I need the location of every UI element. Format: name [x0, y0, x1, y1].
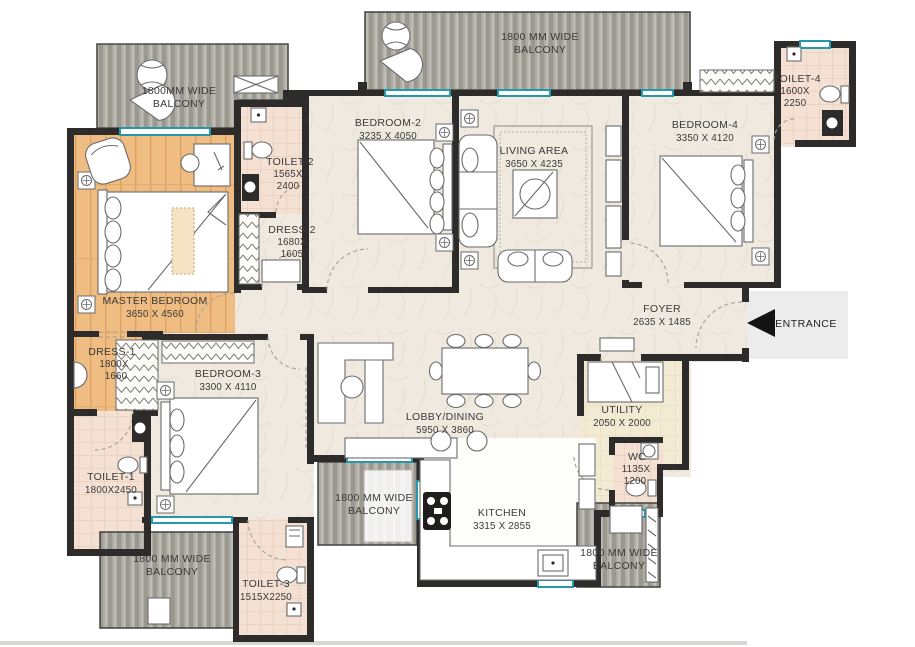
room-label-balcony-tl: 1800MM WIDE: [142, 85, 216, 97]
room-label-utility: UTILITY: [601, 404, 642, 416]
room-label-master: MASTER BEDROOM: [102, 295, 207, 307]
floor-plan-drawing: ENTRANCE: [0, 0, 915, 647]
kitchen-window: [538, 580, 573, 587]
foyer-shoe-cabinet: [600, 338, 634, 351]
balcony-bl-box: [148, 598, 170, 624]
room-dim-toilet1: 1800X2450: [85, 485, 137, 496]
room-label-wc: WC: [628, 451, 646, 463]
bedroom2-balcony-slider: [385, 90, 450, 96]
room-label-balcony-tl-2: BALCONY: [153, 98, 205, 110]
living-loveseat: [498, 250, 572, 282]
living-side-table-1: [461, 110, 478, 127]
kitchen-stove: [423, 492, 451, 530]
tv-unit: [606, 126, 621, 276]
room-label-living: LIVING AREA: [500, 145, 569, 157]
room-label-balcony-bl: 1800 MM WIDE: [133, 553, 211, 565]
room-label-balcony-br-2: BALCONY: [593, 560, 645, 572]
room-label-balcony-tc: 1800 MM WIDE: [501, 31, 579, 43]
room-label-balcony-tc-2: BALCONY: [514, 44, 566, 56]
bedroom4-nightstand-1: [752, 136, 769, 153]
room-dim-dress1b: 1660: [105, 371, 128, 382]
living-center-table: [513, 170, 557, 218]
room-dim-living: 3650 X 4235: [505, 159, 563, 170]
room-dim-bedroom3: 3300 X 4110: [199, 382, 256, 393]
room-dim-wcb: 1200: [624, 476, 647, 487]
dress2-wardrobe: [239, 214, 259, 284]
room-label-lobby: LOBBY/DINING: [406, 411, 484, 423]
living-sofa: [459, 135, 497, 247]
dress2-bench: [262, 260, 300, 282]
room-dim-toilet3: 1515X2250: [240, 592, 292, 603]
room-label-toilet1: TOILET-1: [87, 471, 135, 483]
bottom-edge-strip: [0, 641, 747, 645]
toilet4-window: [800, 41, 830, 48]
utility-appliances: [588, 362, 663, 402]
room-label-bedroom4: BEDROOM-4: [672, 119, 738, 131]
room-dim-utility: 2050 X 2000: [593, 418, 651, 429]
bedroom3-wardrobe: [162, 341, 254, 363]
room-dim-toilet2b: 2400: [277, 181, 300, 192]
room-dim-toilet4a: 1600X: [780, 86, 810, 97]
room-dim-foyer: 2635 X 1485: [633, 317, 691, 328]
balcony-br-screen: [646, 508, 658, 582]
room-dim-bedroom4: 3350 X 4120: [676, 133, 734, 144]
living-side-table-2: [461, 252, 478, 269]
master-rug: [172, 208, 194, 274]
balcony-br-planter: [610, 506, 642, 533]
room-label-balcony-bc-2: BALCONY: [348, 505, 400, 517]
room-dim-master: 3650 X 4560: [126, 309, 184, 320]
room-label-toilet2: TOILET-2: [266, 156, 314, 168]
living-balcony-slider: [498, 90, 550, 96]
bedroom4-wardrobe: [700, 70, 774, 92]
room-label-dress1: DRESS-1: [88, 346, 136, 358]
bedroom2-nightstand-2: [436, 234, 453, 251]
room-label-toilet4: TOILET-4: [773, 73, 821, 85]
room-dim-dress2a: 1680X: [277, 237, 307, 248]
bedroom2-bed: [358, 140, 452, 234]
bedroom4-nightstand-2: [752, 248, 769, 265]
master-bed: [98, 190, 228, 294]
room-dim-kitchen: 3315 X 2855: [473, 521, 531, 532]
room-dim-lobby: 5950 X 3860: [416, 425, 474, 436]
room-dim-wca: 1135X: [622, 464, 651, 475]
bedroom3-nightstand-1: [157, 382, 174, 399]
room-label-kitchen: KITCHEN: [478, 507, 526, 519]
room-label-balcony-br: 1800 MM WIDE: [580, 547, 658, 559]
bedroom3-nightstand-2: [157, 496, 174, 513]
room-dim-toilet2a: 1565X: [273, 169, 303, 180]
bedroom3-balcony-slider: [152, 517, 232, 523]
room-label-bedroom3: BEDROOM-3: [195, 368, 261, 380]
bedroom4-window: [642, 90, 673, 96]
room-label-dress2: DRESS-2: [268, 224, 316, 236]
kitchen-sink: [538, 550, 568, 576]
room-label-balcony-bc: 1800 MM WIDE: [335, 492, 413, 504]
master-window: [120, 128, 210, 135]
entrance-label: ENTRANCE: [775, 318, 837, 330]
master-nightstand-2: [78, 296, 95, 313]
room-label-foyer: FOYER: [643, 303, 681, 315]
room-dim-dress2b: 1605: [281, 249, 304, 260]
bedroom4-bed: [660, 156, 753, 246]
room-dim-toilet4b: 2250: [784, 98, 807, 109]
bedroom3-bed: [161, 398, 258, 494]
room-label-balcony-bl-2: BALCONY: [146, 566, 198, 578]
bedroom2-nightstand-1: [436, 124, 453, 141]
room-label-bedroom2: BEDROOM-2: [355, 117, 421, 129]
room-dim-dress1a: 1800X: [99, 359, 129, 370]
room-label-toilet3: TOILET-3: [242, 578, 290, 590]
room-dim-bedroom2: 3235 X 4050: [359, 131, 417, 142]
floor-plan-canvas: ENTRANCE: [0, 0, 915, 647]
